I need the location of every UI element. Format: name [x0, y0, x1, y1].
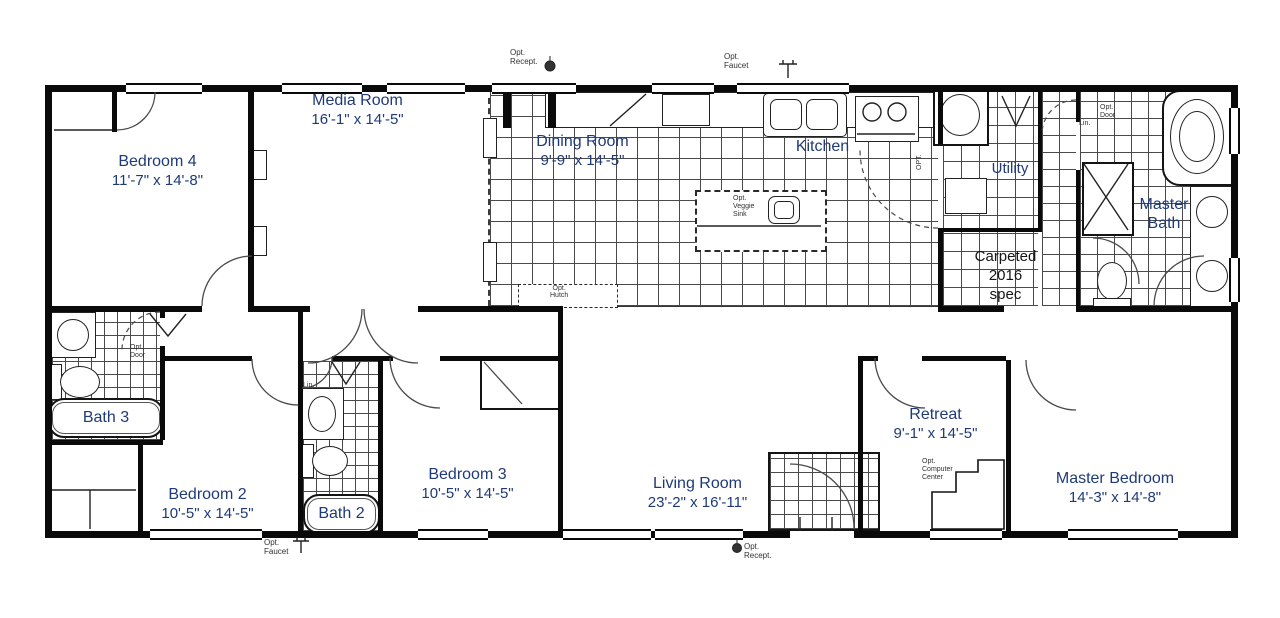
room-label-retreat: Retreat 9'-1" x 14'-5": [868, 406, 1003, 443]
room-label-bath-2: Bath 2: [318, 505, 364, 523]
wall: [938, 228, 1042, 232]
wall: [378, 356, 383, 531]
range-fixture: [855, 96, 919, 142]
annotation-opt-faucet-top: Opt. Faucet: [724, 52, 748, 70]
window: [126, 83, 202, 94]
window: [150, 529, 262, 540]
window: [1229, 108, 1240, 154]
optional-wall-post: [483, 242, 497, 282]
room-dims: 9'-9" x 14'-5": [495, 152, 670, 170]
room-name: Master Bath: [1124, 196, 1204, 234]
window: [1068, 529, 1178, 540]
wall: [45, 440, 163, 445]
kitchen-island: [695, 190, 827, 252]
window: [492, 83, 576, 94]
annotation-opt-door-bath3: Opt. Door: [130, 344, 145, 360]
wall: [503, 92, 511, 128]
bathtub-fixture: Bath 2: [303, 494, 380, 534]
window: [418, 529, 488, 540]
window: [655, 529, 743, 540]
window: [563, 529, 651, 540]
receptacle-icon: [733, 539, 742, 553]
room-dims: 23'-2" x 16'-11": [595, 494, 800, 512]
wall: [112, 92, 117, 132]
wall: [160, 356, 252, 361]
wall: [922, 356, 1006, 361]
wall: [383, 356, 393, 361]
wall: [440, 356, 558, 361]
wall: [858, 356, 878, 361]
room-dims: 9'-1" x 14'-5": [868, 425, 1003, 443]
wall: [1006, 360, 1011, 531]
room-dims: 16'-1" x 14'-5": [255, 111, 460, 129]
room-name: Dining Room: [495, 133, 670, 152]
wall: [558, 306, 563, 531]
wall: [1076, 92, 1080, 122]
wall: [548, 92, 556, 128]
room-name: Living Room: [595, 475, 800, 494]
annotation-lin-master-closet: Lin.: [1079, 120, 1090, 128]
room-name: Kitchen: [770, 138, 875, 157]
bathtub-fixture: Bath 3: [48, 398, 164, 438]
toilet-fixture: [312, 446, 348, 476]
annotation-opt-computer-center: Opt. Computer Center: [922, 458, 953, 482]
wall: [938, 306, 1004, 312]
sink-fixture: [308, 396, 336, 432]
wall: [332, 356, 378, 361]
annotation-opt-vertical: OPT.: [916, 154, 924, 170]
washer-drum: [940, 94, 980, 136]
annotation-opt-recept-bottom: Opt. Recept.: [744, 542, 772, 560]
garden-tub-ring: [1179, 111, 1215, 162]
window: [1229, 258, 1240, 302]
room-dims: 11'-7" x 14'-8": [60, 172, 255, 190]
room-dims: 14'-3" x 14'-8": [1015, 489, 1215, 507]
room-name: Bedroom 2: [115, 486, 300, 505]
room-label-utility: Utility: [975, 160, 1045, 178]
wall: [858, 360, 863, 531]
wall: [45, 306, 202, 312]
annotation-opt-recept-top: Opt. Recept.: [510, 48, 538, 66]
veggie-sink-bowl: [774, 201, 794, 219]
toilet-fixture: [60, 366, 100, 398]
room-name: Utility: [975, 160, 1045, 178]
window: [652, 83, 714, 94]
window: [737, 83, 849, 94]
faucet-icon: [779, 60, 797, 78]
utility-appliance: [945, 178, 987, 214]
sink-fixture: [57, 319, 89, 351]
wall: [418, 306, 560, 312]
room-name: Master Bedroom: [1015, 470, 1215, 489]
room-name: Media Room: [255, 92, 460, 111]
room-label-bedroom-2: Bedroom 2 10'-5" x 14'-5": [115, 486, 300, 523]
room-label-bedroom-3: Bedroom 3 10'-5" x 14'-5": [385, 466, 550, 503]
wall: [248, 92, 254, 306]
wall: [1076, 306, 1231, 312]
toilet-fixture: [1097, 262, 1127, 300]
wall: [938, 232, 943, 306]
wall: [45, 85, 1238, 92]
window: [930, 529, 1002, 540]
front-door-opening: [790, 531, 854, 538]
annotation-opt-door-master-closet: Opt. Door: [1100, 104, 1115, 120]
room-label-living-room: Living Room 23'-2" x 16'-11": [595, 475, 800, 512]
room-label-master-bath: Master Bath: [1124, 196, 1204, 234]
room-label-bedroom-4: Bedroom 4 11'-7" x 14'-8": [60, 153, 255, 190]
room-label-media-room: Media Room 16'-1" x 14'-5": [255, 92, 460, 129]
room-label-bath-3: Bath 3: [83, 409, 129, 427]
room-label-kitchen: Kitchen: [770, 138, 875, 157]
kitchen-sink-bowl: [770, 99, 802, 130]
wall: [938, 92, 943, 144]
wall: [160, 306, 165, 318]
room-dims: 10'-5" x 14'-5": [115, 505, 300, 523]
room-label-master-bedroom: Master Bedroom 14'-3" x 14'-8": [1015, 470, 1215, 507]
refrigerator-fixture: [662, 94, 710, 126]
room-name: Bedroom 4: [60, 153, 255, 172]
wall: [1076, 170, 1080, 306]
kitchen-sink-bowl: [806, 99, 838, 130]
annotation-opt-hutch: Opt. Hutch: [550, 285, 568, 299]
room-label-dining-room: Dining Room 9'-9" x 14'-5": [495, 133, 670, 170]
faucet-icon: [293, 537, 309, 553]
receptacle-icon: [545, 56, 555, 71]
carpet-spec-note: Carpeted 2016 spec: [958, 248, 1053, 304]
room-dims: 10'-5" x 14'-5": [385, 485, 550, 503]
media-niche: [252, 226, 267, 256]
room-name: Bedroom 3: [385, 466, 550, 485]
annotation-opt-faucet-bottom: Opt. Faucet: [264, 538, 288, 556]
annotation-lin-bath2: Lin.: [303, 382, 314, 390]
floor-plan: Bath 3 Bath 2: [0, 0, 1280, 618]
bedroom3-closet: [480, 358, 562, 410]
room-name: Retreat: [868, 406, 1003, 425]
sink-fixture: [1196, 260, 1228, 292]
annotation-opt-veggie-sink: Opt. Veggie Sink: [733, 195, 754, 219]
